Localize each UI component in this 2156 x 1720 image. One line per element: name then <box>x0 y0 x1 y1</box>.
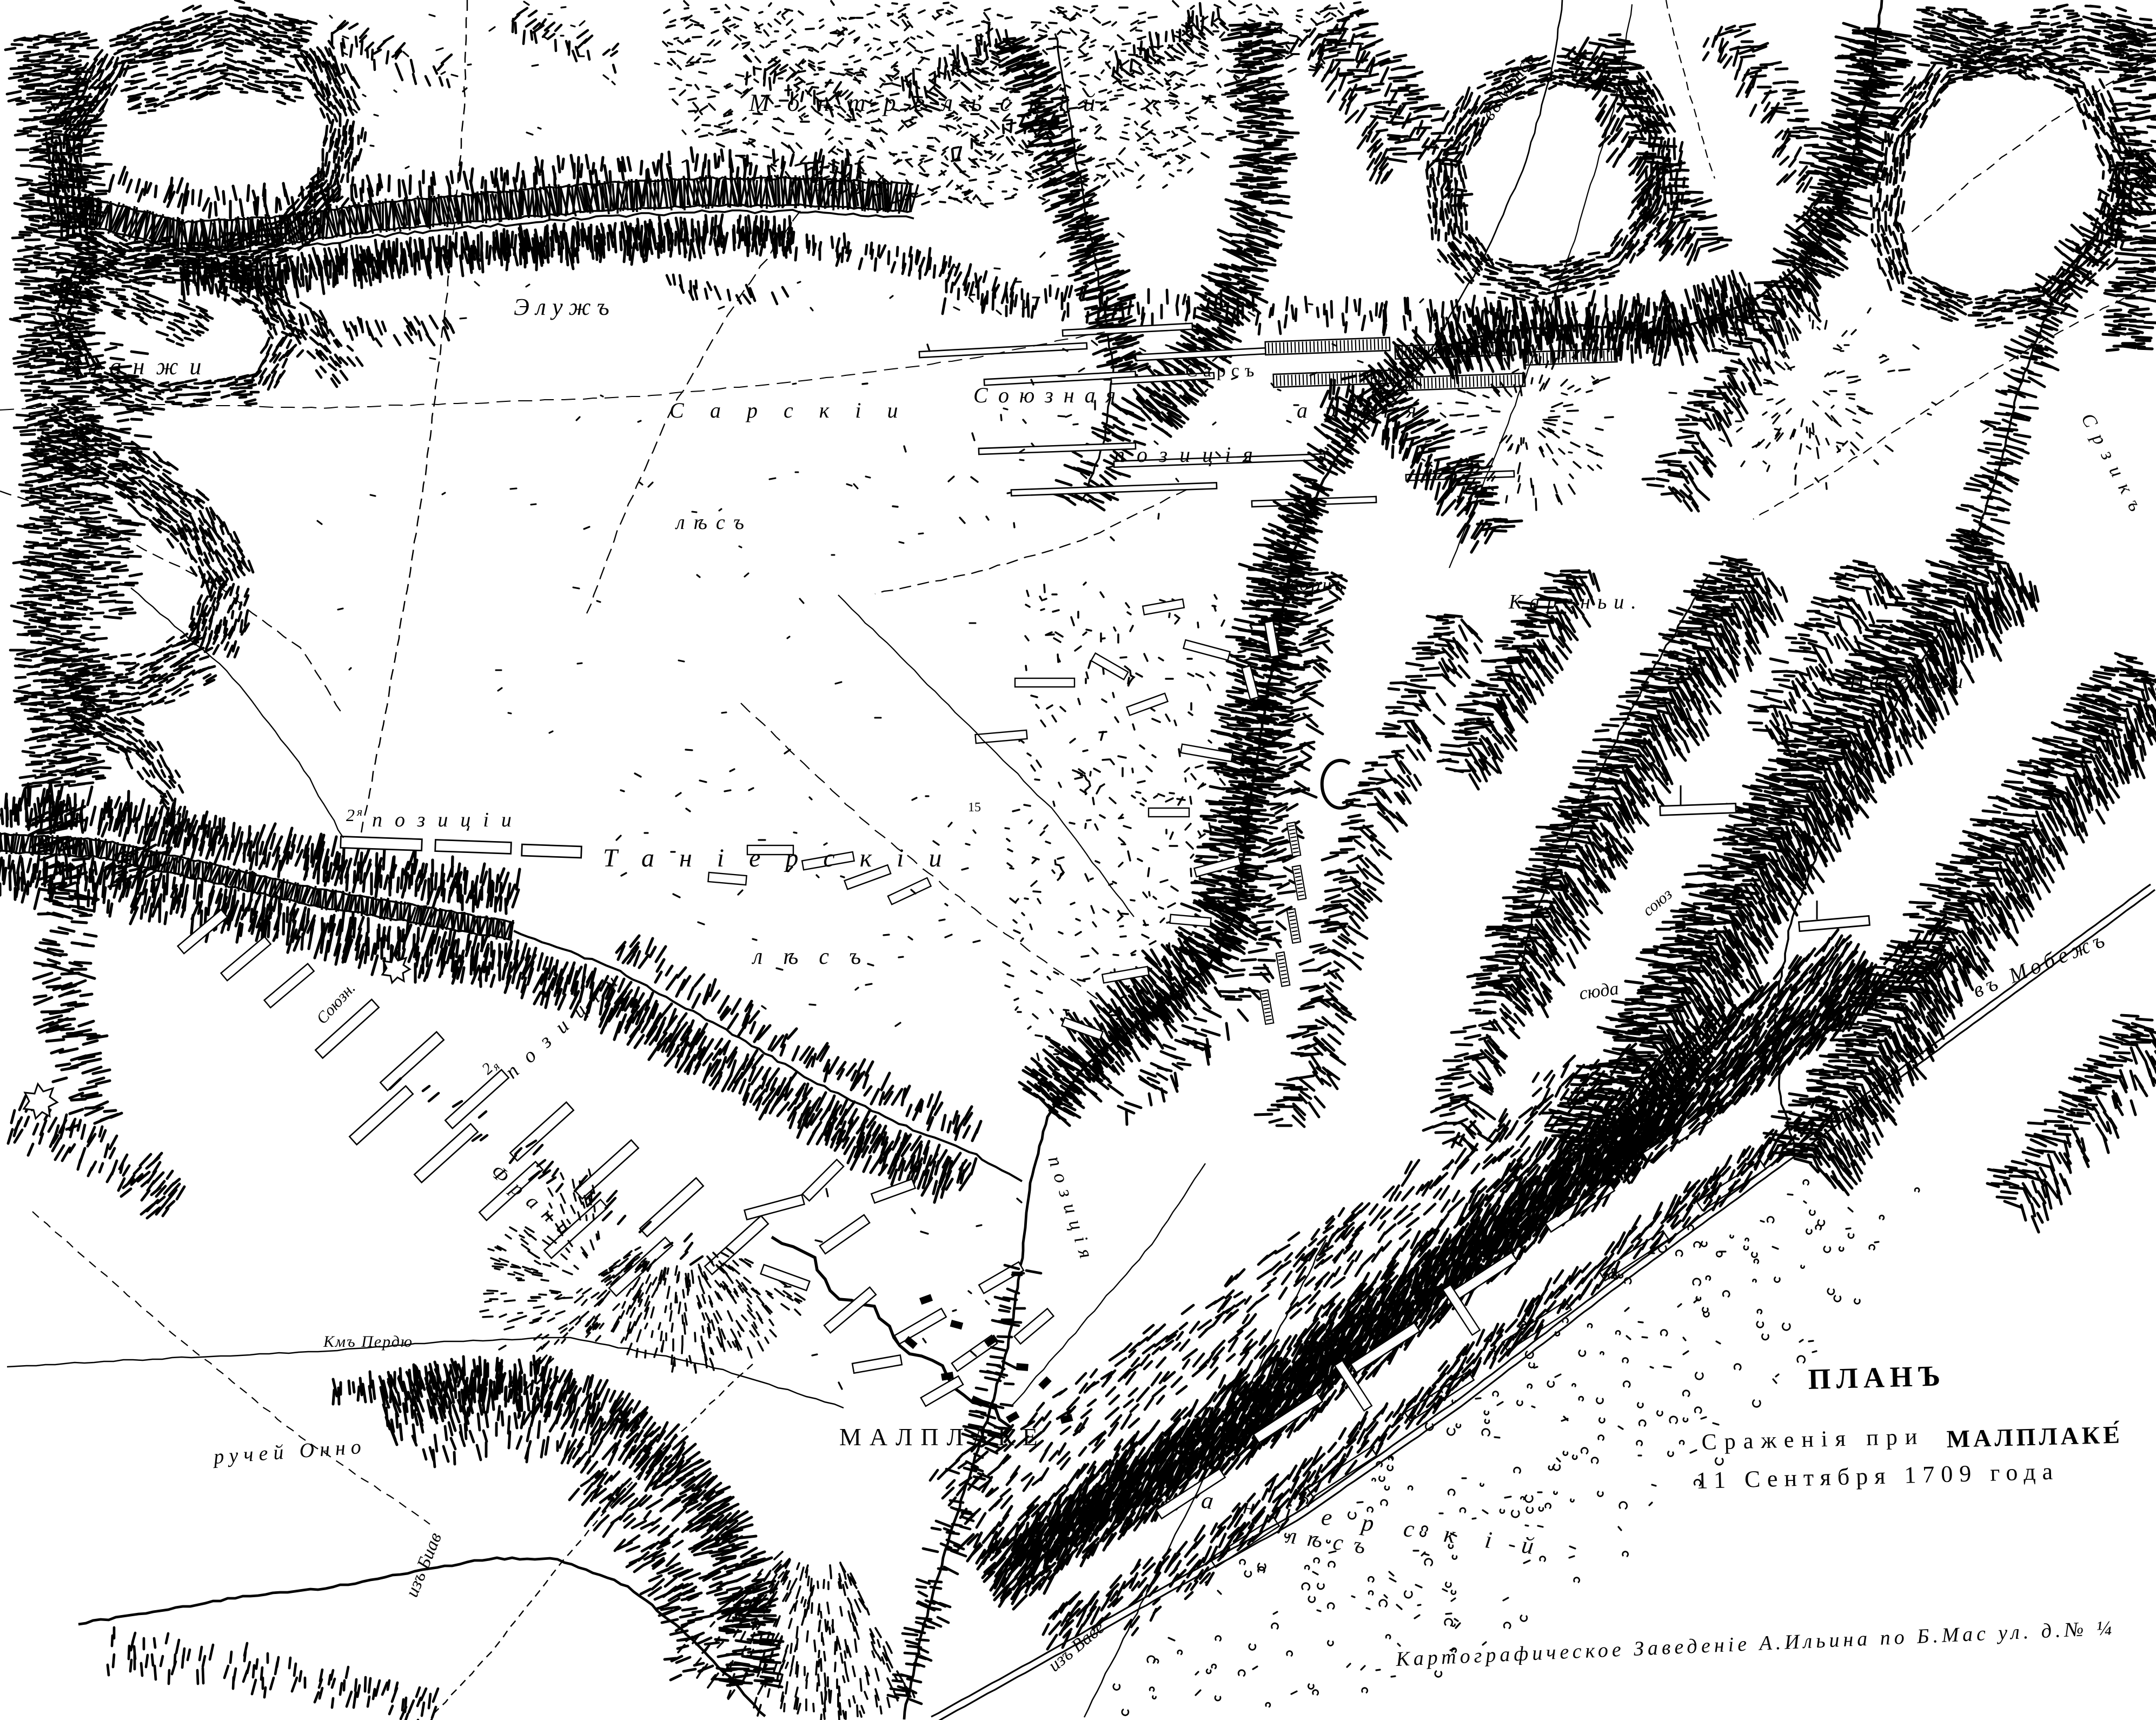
svg-text:позиціи: позиціи <box>372 809 524 831</box>
svg-text:Невержи: Невержи <box>1849 670 1968 693</box>
svg-text:Элужъ: Элужъ <box>514 294 616 320</box>
svg-text:Сарскіи: Сарскіи <box>669 398 924 422</box>
svg-text:Союзная: Союзная <box>973 383 1126 407</box>
svg-text:лѣсъ: лѣсъ <box>752 944 881 969</box>
svg-text:Кареньи.: Кареньи. <box>1508 591 1643 613</box>
svg-text:я: я <box>356 805 362 818</box>
svg-text:Сарсъ: Сарсъ <box>1185 361 1259 381</box>
svg-text:2: 2 <box>346 805 355 825</box>
svg-text:15: 15 <box>968 801 981 815</box>
svg-text:лѣсъ: лѣсъ <box>675 511 753 534</box>
svg-text:Таніерскіи: Таніерскіи <box>603 844 967 872</box>
svg-text:ПЛАНЪ: ПЛАНЪ <box>1808 1359 1946 1395</box>
svg-text:МАЛПЛАКЕ́: МАЛПЛАКЕ́ <box>1946 1420 2123 1453</box>
svg-text:позиція: позиція <box>1114 442 1265 467</box>
svg-text:Монтрельскій: Монтрельскій <box>748 89 1113 116</box>
svg-text:лѣсъ: лѣсъ <box>790 171 867 196</box>
